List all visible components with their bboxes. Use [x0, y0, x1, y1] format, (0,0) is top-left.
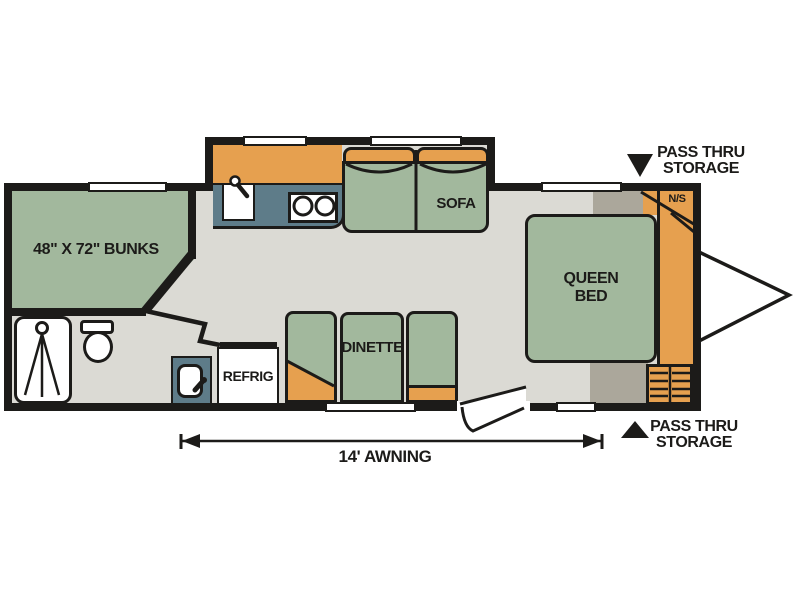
pass-thru-triangle-down-icon: [627, 154, 653, 177]
trailer-tongue: [701, 253, 789, 340]
bunks-wall-right: [188, 191, 196, 259]
entry-door-opening: [457, 401, 530, 413]
sofa-label: SOFA: [416, 196, 496, 211]
kitchen-cabinet: [213, 145, 342, 183]
nightstand-label: N/S: [659, 194, 695, 205]
queen-bed-label: QUEEN BED: [541, 270, 641, 306]
shower-stall: [14, 316, 72, 404]
floorplan-canvas: 48" X 72" BUNKS SOFA DINETTE REFRIG QUEE…: [0, 0, 800, 600]
window-bottom-right: [556, 402, 596, 412]
dinette-bench-right: [406, 311, 458, 403]
entry-steps: [646, 364, 693, 405]
wardrobe: [657, 191, 693, 365]
slideout-wall-right: [487, 137, 495, 191]
refrigerator-label: REFRIG: [218, 369, 278, 383]
bathroom-sink: [177, 364, 203, 398]
dinette-bench-left: [285, 311, 337, 403]
awning-label: 14' AWNING: [310, 448, 460, 465]
pass-thru-top-line1: PASS THRU: [654, 145, 748, 161]
window-bottom-left: [325, 402, 416, 412]
pass-thru-bottom-line2: STORAGE: [647, 435, 741, 451]
wall-left: [4, 183, 12, 411]
kitchen-sink: [222, 183, 255, 221]
queen-bed-label-line1: QUEEN: [541, 270, 641, 288]
dinette-label: DINETTE: [322, 340, 422, 355]
window-top-right: [541, 182, 622, 192]
refrigerator-top-edge: [220, 342, 277, 349]
dinette-table: [340, 312, 404, 403]
dinette-bench-left-base: [288, 314, 334, 400]
pass-thru-top-line2: STORAGE: [654, 161, 748, 177]
window-slideout-1: [243, 136, 307, 146]
wall-right: [693, 183, 701, 411]
bathroom-wall: [4, 308, 146, 316]
window-top-left: [88, 182, 167, 192]
pass-thru-bottom-line1: PASS THRU: [647, 419, 741, 435]
pass-thru-bottom-callout: PASS THRU STORAGE: [647, 419, 741, 451]
queen-bed-label-line2: BED: [541, 288, 641, 306]
dinette-bench-right-base: [409, 385, 455, 400]
pass-thru-triangle-up-icon: [621, 421, 649, 438]
pass-thru-top-callout: PASS THRU STORAGE: [654, 145, 748, 177]
window-slideout-2: [370, 136, 462, 146]
slideout-wall-left: [205, 137, 213, 191]
bunks-label: 48" X 72" BUNKS: [20, 242, 172, 258]
bed-foot-shadow: [590, 363, 648, 403]
toilet-bowl: [83, 331, 113, 363]
stove: [288, 192, 338, 223]
